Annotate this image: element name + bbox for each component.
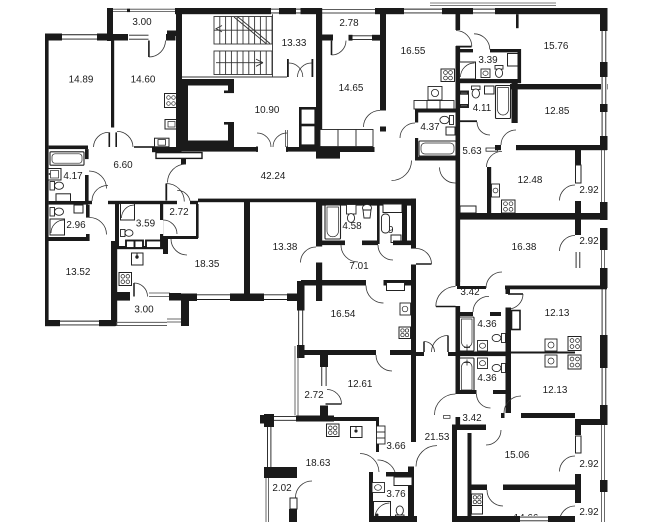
- svg-text:4.36: 4.36: [477, 319, 497, 330]
- svg-text:13.38: 13.38: [273, 242, 298, 253]
- svg-text:13.52: 13.52: [66, 267, 91, 278]
- svg-text:16.54: 16.54: [331, 309, 356, 320]
- svg-text:2.78: 2.78: [339, 18, 359, 29]
- svg-text:12.13: 12.13: [543, 385, 568, 396]
- svg-text:2.72: 2.72: [169, 207, 188, 218]
- svg-text:12.13: 12.13: [545, 308, 570, 319]
- svg-text:18.35: 18.35: [195, 259, 220, 270]
- svg-text:21.53: 21.53: [425, 432, 450, 443]
- svg-text:6.60: 6.60: [113, 160, 133, 171]
- svg-text:4.37: 4.37: [420, 122, 439, 133]
- svg-text:3.59: 3.59: [136, 219, 156, 230]
- svg-text:3.76: 3.76: [386, 489, 406, 500]
- svg-text:4.36: 4.36: [477, 373, 497, 384]
- svg-text:5.63: 5.63: [462, 146, 482, 157]
- svg-text:18.63: 18.63: [306, 458, 331, 469]
- svg-text:2.92: 2.92: [579, 185, 598, 196]
- svg-text:16.55: 16.55: [401, 46, 426, 57]
- svg-text:3.66: 3.66: [386, 441, 406, 452]
- svg-text:42.24: 42.24: [261, 171, 286, 182]
- svg-text:2.96: 2.96: [66, 220, 86, 231]
- svg-text:3.39: 3.39: [478, 55, 498, 66]
- svg-text:15.06: 15.06: [505, 450, 530, 461]
- svg-text:4.58: 4.58: [342, 221, 362, 232]
- svg-text:12.61: 12.61: [348, 379, 373, 390]
- svg-text:12.48: 12.48: [518, 175, 543, 186]
- svg-text:3.42: 3.42: [462, 413, 481, 424]
- svg-text:4.17: 4.17: [63, 171, 82, 182]
- svg-text:3.00: 3.00: [132, 17, 152, 28]
- svg-text:13.33: 13.33: [282, 38, 307, 49]
- svg-text:2.92: 2.92: [579, 236, 598, 247]
- svg-text:10.90: 10.90: [255, 105, 280, 116]
- svg-text:2.92: 2.92: [579, 507, 598, 518]
- svg-text:14.65: 14.65: [339, 83, 364, 94]
- svg-text:7.01: 7.01: [349, 261, 369, 272]
- svg-text:4.11: 4.11: [473, 103, 492, 114]
- svg-text:16.38: 16.38: [512, 242, 537, 253]
- svg-text:14.89: 14.89: [69, 75, 94, 86]
- svg-text:3.42: 3.42: [460, 287, 479, 298]
- svg-text:2.72: 2.72: [304, 390, 323, 401]
- svg-text:3.00: 3.00: [134, 305, 154, 316]
- svg-text:15.76: 15.76: [544, 41, 569, 52]
- svg-text:2.92: 2.92: [579, 459, 598, 470]
- svg-text:2.02: 2.02: [272, 483, 291, 494]
- svg-text:12.85: 12.85: [545, 106, 570, 117]
- svg-text:14.60: 14.60: [131, 75, 156, 86]
